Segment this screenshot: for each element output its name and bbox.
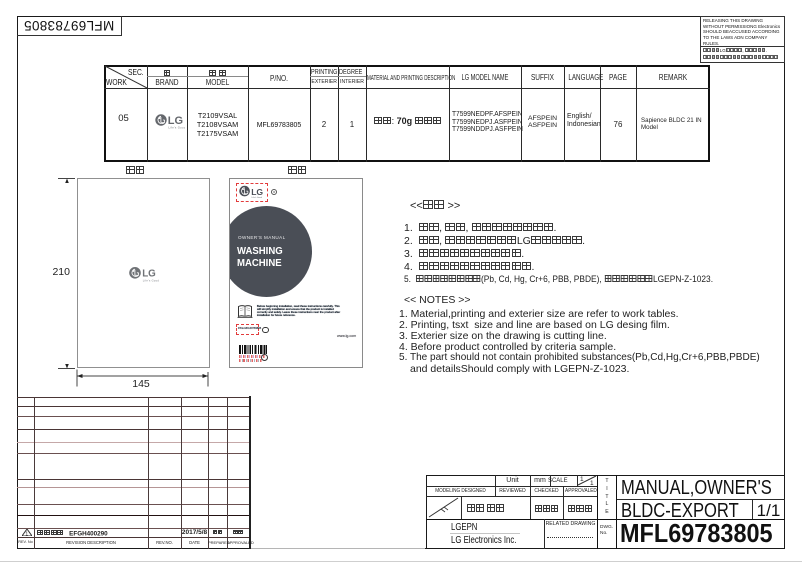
svg-text:LG: LG bbox=[251, 187, 263, 197]
svg-text:1: 1 bbox=[25, 531, 28, 536]
svg-text:1: 1 bbox=[590, 480, 594, 486]
svg-text:Life's Good: Life's Good bbox=[168, 126, 185, 130]
svg-text:1: 1 bbox=[580, 476, 584, 483]
svg-text:Life's Good: Life's Good bbox=[142, 278, 158, 282]
svg-text:Life's Good: Life's Good bbox=[252, 197, 263, 199]
svg-text:LG: LG bbox=[142, 269, 156, 280]
